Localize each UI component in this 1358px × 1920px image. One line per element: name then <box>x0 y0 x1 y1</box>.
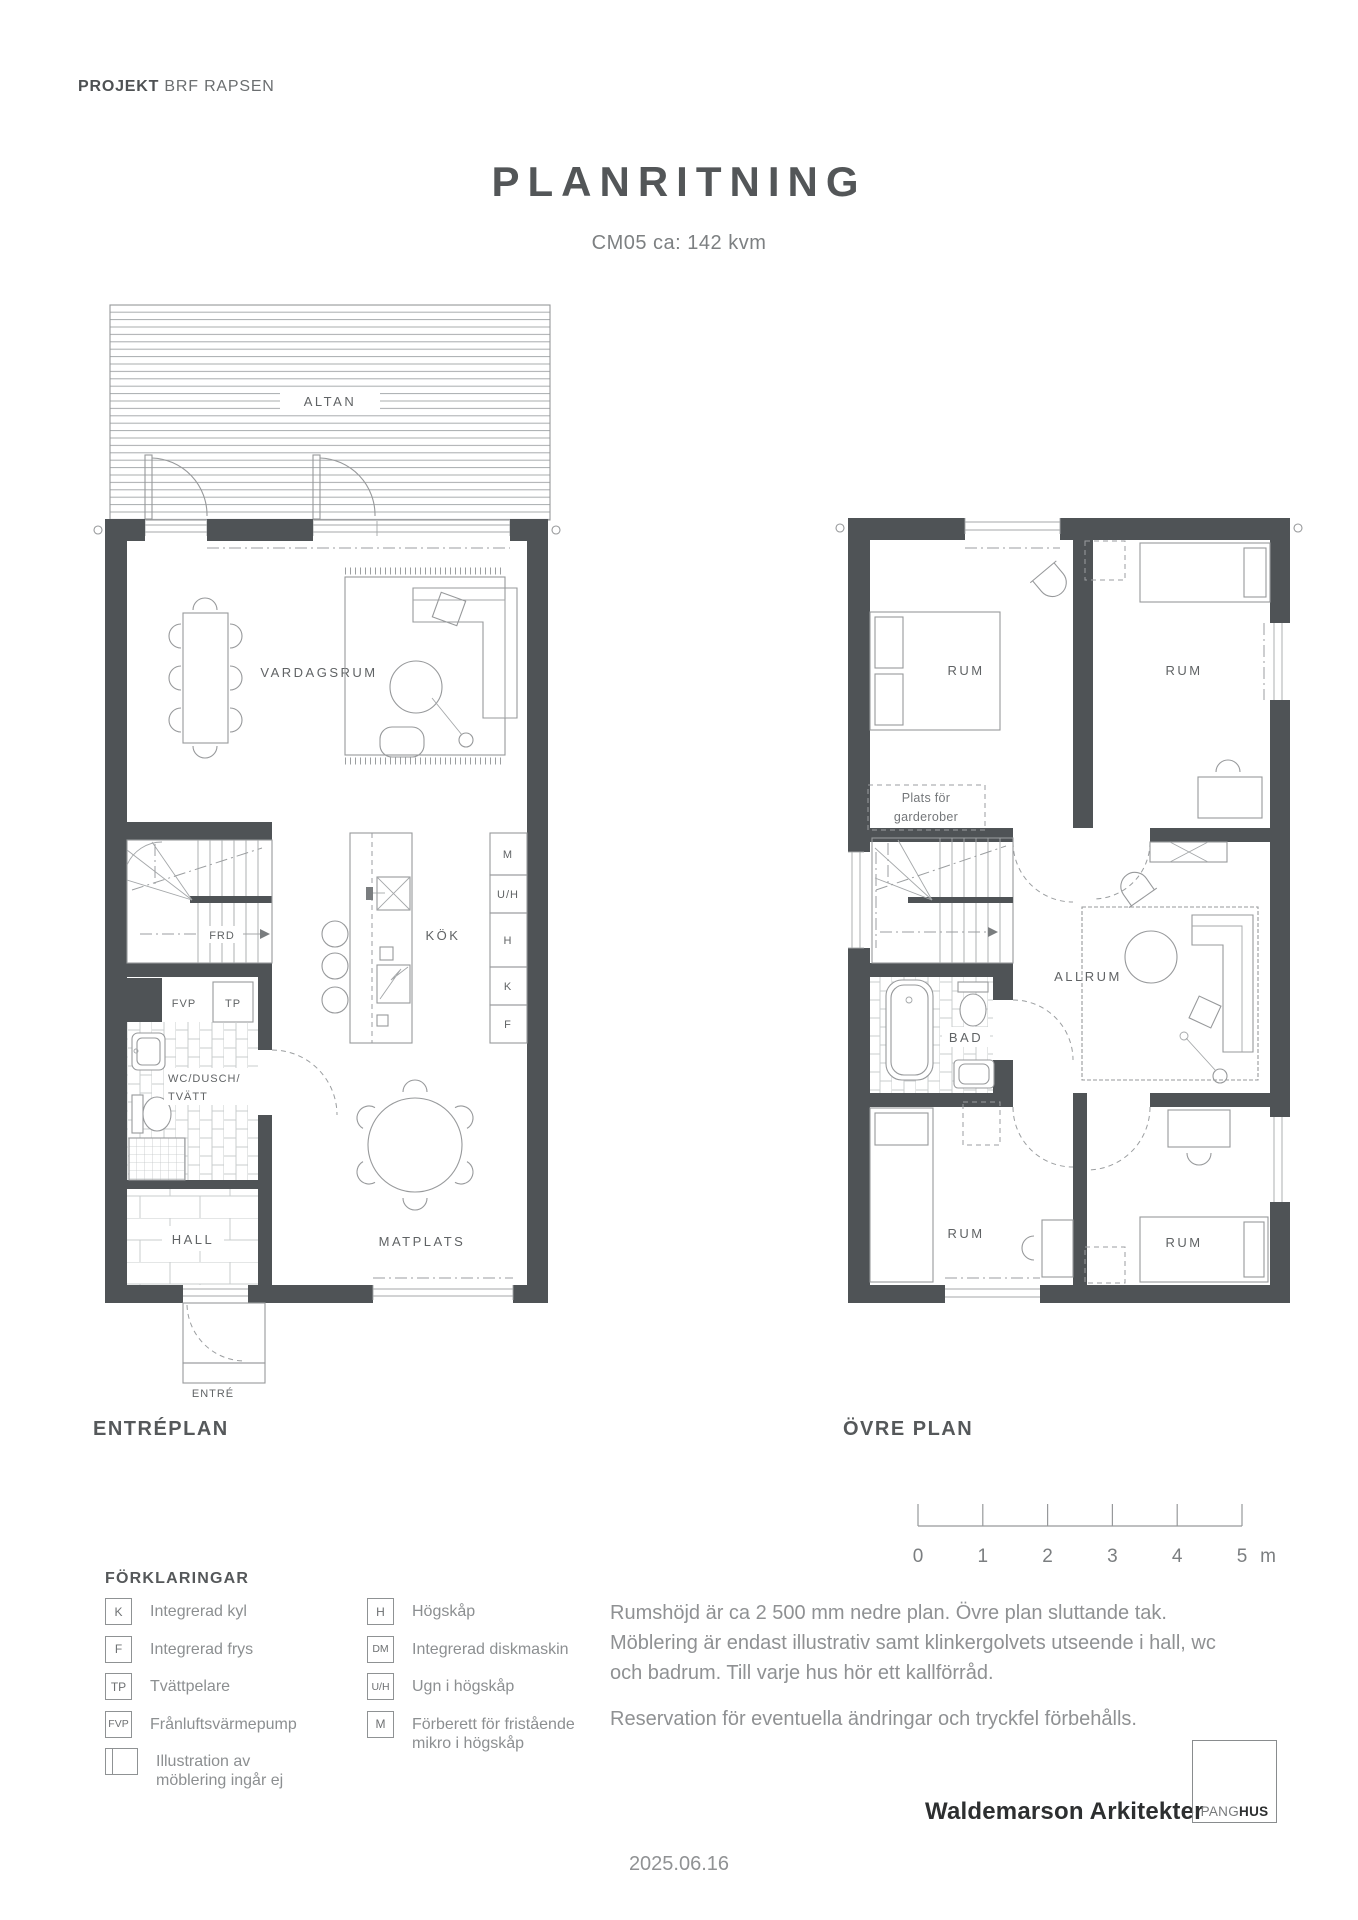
pouf <box>380 727 424 757</box>
legend-symbol-tp: TP <box>105 1673 132 1700</box>
allrum: ALLRUM <box>1054 842 1258 1083</box>
wc-label-line2: TVÄTT <box>168 1091 208 1103</box>
legend-item-fvp: FVP Frånluftsvärmepump <box>105 1711 360 1749</box>
frd-label: FRD <box>209 930 235 942</box>
legend-label: Integrerad frys <box>150 1636 253 1659</box>
rum-top-right: RUM <box>1085 541 1270 818</box>
legend-item-kyl: K Integrerad kyl <box>105 1598 360 1636</box>
entreplan-floor-plan: ALTAN <box>80 250 580 1410</box>
fvp-label: FVP <box>172 998 196 1010</box>
coffee-table <box>390 661 442 713</box>
toilet-icon <box>958 982 988 992</box>
legend-item-mikro: M Förberett för fristående mikro i högsk… <box>367 1711 622 1749</box>
hall-label: HALL <box>172 1232 215 1247</box>
project-label: PROJEKT <box>78 78 159 95</box>
rum-label: RUM <box>947 663 984 678</box>
rum-bottom-right: RUM <box>1085 1110 1268 1283</box>
cabinet-h: H <box>504 935 513 947</box>
cabinet-row: M U/H H K F <box>490 833 527 1043</box>
garderob-label-line1: Plats för <box>902 791 951 805</box>
scale-tick-4: 4 <box>1172 1546 1183 1567</box>
legend-label: Förberett för fristående mikro i högskåp <box>412 1711 575 1753</box>
title-block: PLANRITNING CM05 ca: 142 kvm <box>0 158 1358 255</box>
wc-dusch-tvatt: WC/DUSCH/ TVÄTT <box>127 1022 258 1180</box>
legend-item-diskmaskin: DM Integrerad diskmaskin <box>367 1636 622 1674</box>
legend-symbol-f: F <box>105 1636 132 1663</box>
kok-label: KÖK <box>426 928 461 943</box>
legend-symbol-m: M <box>367 1711 394 1738</box>
round-table <box>368 1098 462 1192</box>
scale-bar: 0 1 2 3 4 5 m <box>898 1498 1298 1578</box>
altan-label: ALTAN <box>304 394 356 409</box>
legend-symbol-dm: DM <box>367 1636 394 1663</box>
panghus-logo-text: PANGHUS <box>1193 1804 1276 1819</box>
rum-top-left: RUM Plats för garderober <box>868 561 1074 830</box>
scale-unit: m <box>1260 1546 1276 1567</box>
legend-item-hogskap: H Högskåp <box>367 1598 622 1636</box>
sofa <box>413 588 517 718</box>
cabinet-k: K <box>504 981 512 993</box>
tp-label: TP <box>225 998 241 1010</box>
single-bed <box>1140 543 1270 602</box>
matplats: MATPLATS <box>353 1080 478 1249</box>
legend-item-ugn: U/H Ugn i högskåp <box>367 1673 622 1711</box>
legend-label: Ugn i högskåp <box>412 1673 514 1696</box>
appliance-icon <box>377 965 410 1003</box>
legend-symbol-uh: U/H <box>367 1673 394 1700</box>
armchair-icon <box>1113 865 1157 907</box>
rum-label: RUM <box>947 1226 984 1241</box>
legend-label: Integrerad diskmaskin <box>412 1636 569 1659</box>
furniture-symbol-icon <box>105 1748 138 1775</box>
notes-paragraph-2: Reservation för eventuella ändringar och… <box>610 1704 1310 1734</box>
cabinet-f: F <box>504 1019 512 1031</box>
round-table <box>1125 931 1177 983</box>
desk <box>1168 1110 1230 1147</box>
legend-symbol-h: H <box>367 1598 394 1625</box>
legend-symbol-fvp: FVP <box>105 1711 132 1738</box>
entre-label: ENTRÉ <box>192 1387 234 1400</box>
corner-marker-icon <box>1294 524 1302 532</box>
corner-marker-icon <box>836 524 844 532</box>
staircase <box>872 838 1013 963</box>
sheet-date: 2025.06.16 <box>0 1853 1358 1876</box>
legend-column-2: H Högskåp DM Integrerad diskmaskin U/H U… <box>367 1598 622 1748</box>
rum-label: RUM <box>1165 663 1202 678</box>
scale-tick-2: 2 <box>1042 1546 1053 1567</box>
cabinet-uh: U/H <box>497 889 519 901</box>
page-title: PLANRITNING <box>0 158 1358 206</box>
rum-bottom-left: RUM <box>870 1102 1073 1282</box>
single-bed <box>1140 1217 1268 1282</box>
bad-label: BAD <box>949 1030 983 1045</box>
notes-block: Rumshöjd är ca 2 500 mm nedre plan. Övre… <box>610 1598 1310 1734</box>
project-name: BRF RAPSEN <box>164 78 274 95</box>
scale-tick-1: 1 <box>978 1546 989 1567</box>
cushion-icon <box>432 592 465 625</box>
bathtub-icon <box>886 980 933 1080</box>
matplats-label: MATPLATS <box>379 1234 466 1249</box>
legend-column-1: K Integrerad kyl F Integrerad frys TP Tv… <box>105 1598 360 1786</box>
desk <box>1042 1220 1073 1277</box>
stool-icon <box>322 953 348 979</box>
scale-tick-0: 0 <box>913 1546 924 1567</box>
interior-walls <box>870 540 1270 1285</box>
floor-lamp-icon <box>1213 1069 1227 1083</box>
stool-icon <box>322 987 348 1013</box>
legend-item-tvattpelare: TP Tvättpelare <box>105 1673 360 1711</box>
garderob-label-line2: garderober <box>894 810 958 824</box>
plan-sheet: PROJEKT BRF RAPSEN PLANRITNING CM05 ca: … <box>0 0 1358 1920</box>
vardagsrum-label: VARDAGSRUM <box>260 665 377 680</box>
ovre-plan-floor-plan: BAD RUM Plats för garderober RUM ALLRUM <box>820 400 1320 1320</box>
corner-marker-icon <box>94 526 102 534</box>
logo-part-pang: PANG <box>1201 1804 1239 1819</box>
logo-part-hus: HUS <box>1239 1804 1268 1819</box>
legend-heading: FÖRKLARINGAR <box>105 1570 249 1588</box>
armchair-icon <box>1030 561 1074 604</box>
single-bed <box>870 1108 933 1282</box>
corner-marker-icon <box>552 526 560 534</box>
legend-label: Frånluftsvärmepump <box>150 1711 297 1734</box>
hall: HALL <box>127 1189 258 1285</box>
wc-label-line1: WC/DUSCH/ <box>168 1073 241 1085</box>
notes-paragraph-1: Rumshöjd är ca 2 500 mm nedre plan. Övre… <box>610 1598 1310 1688</box>
legend-label: Illustration av möblering ingår ej <box>156 1748 283 1790</box>
stool-icon <box>322 921 348 947</box>
legend-label: Högskåp <box>412 1598 475 1621</box>
scale-tick-3: 3 <box>1107 1546 1118 1567</box>
legend-symbol-k: K <box>105 1598 132 1625</box>
entre-vestibule: ENTRÉ <box>183 1303 265 1400</box>
rum-label: RUM <box>1165 1235 1202 1250</box>
dining-table <box>183 613 228 743</box>
architect-name: Waldemarson Arkitekter <box>925 1798 1204 1826</box>
rug <box>1082 907 1258 1080</box>
floor-lamp-icon <box>459 733 473 747</box>
project-header: PROJEKT BRF RAPSEN <box>78 78 275 96</box>
toilet-icon <box>132 1095 143 1133</box>
legend-item-frys: F Integrerad frys <box>105 1636 360 1674</box>
kitchen-island <box>322 833 412 1043</box>
vardagsrum: VARDAGSRUM <box>169 571 517 761</box>
door-arc <box>272 1050 337 1115</box>
top-wall-openings <box>145 521 510 536</box>
outer-walls <box>848 518 1290 1303</box>
scale-tick-5: 5 <box>1237 1546 1248 1567</box>
cushion-icon <box>1189 996 1221 1028</box>
legend-label: Integrerad kyl <box>150 1598 247 1621</box>
desk <box>1198 777 1262 818</box>
entreplan-caption: ENTRÉPLAN <box>93 1418 229 1441</box>
bad-room: BAD <box>870 977 994 1093</box>
allrum-label: ALLRUM <box>1054 969 1122 984</box>
cabinet-m: M <box>503 849 513 861</box>
altan-deck: ALTAN <box>110 305 550 520</box>
sofa <box>1192 915 1253 1052</box>
legend-label: Tvättpelare <box>150 1673 230 1696</box>
legend-item-mobler: Illustration av möblering ingår ej <box>105 1748 360 1786</box>
panghus-logo: PANGHUS <box>1192 1740 1277 1823</box>
ovre-plan-caption: ÖVRE PLAN <box>843 1418 973 1441</box>
